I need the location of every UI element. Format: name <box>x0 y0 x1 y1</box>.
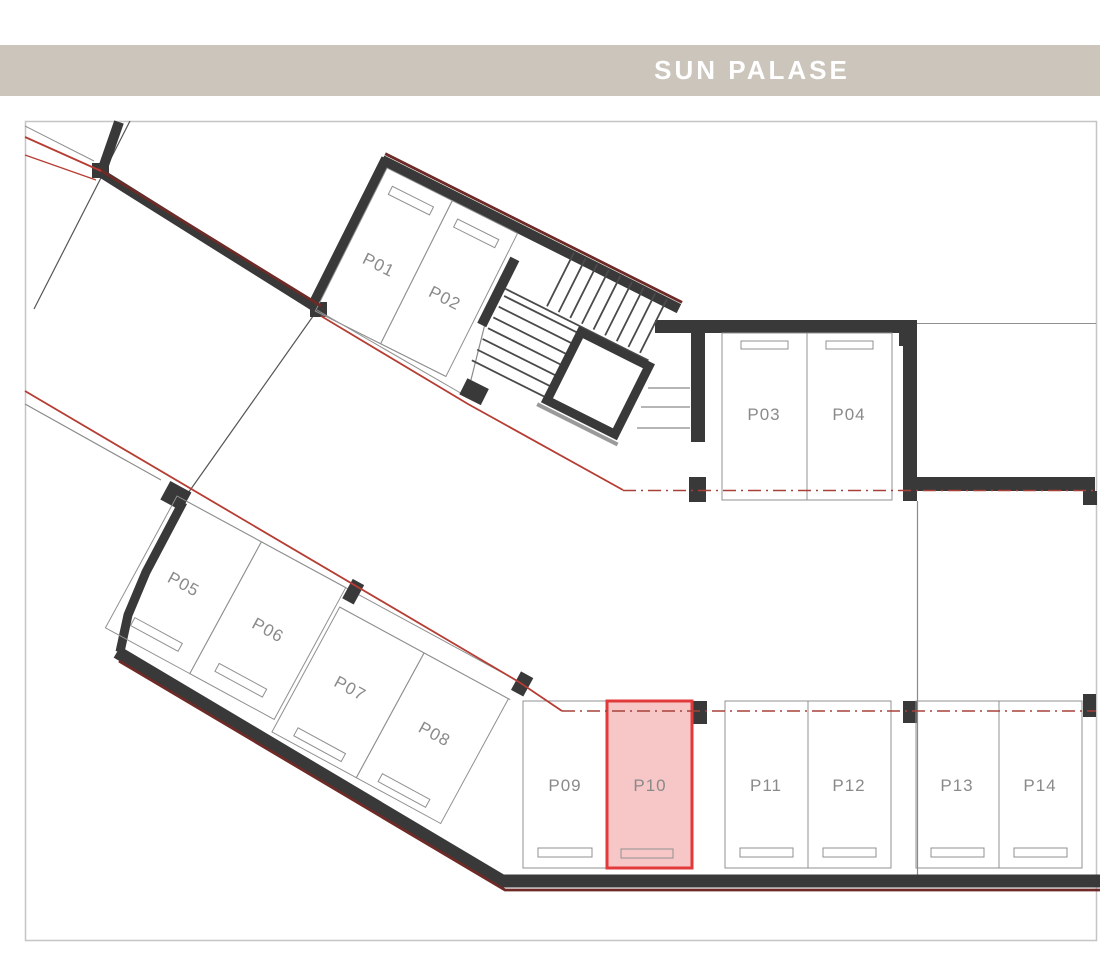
floor-plan: P01P02 P05P06P07P08 P03P04 P09P10P11P12P… <box>0 0 1100 960</box>
stall-label: P03 <box>747 405 780 424</box>
stall-label: P10 <box>633 776 666 795</box>
column <box>903 701 917 723</box>
parking-stall-P10[interactable]: P10 <box>607 701 692 868</box>
page: SUN PALASE <box>0 0 1100 960</box>
stall-label: P04 <box>832 405 865 424</box>
column <box>1083 694 1096 717</box>
stall-label: P11 <box>750 776 782 795</box>
stall-label: P12 <box>832 776 865 795</box>
column <box>689 477 706 502</box>
stall-label: P14 <box>1023 776 1056 795</box>
wall-stub <box>1083 491 1097 505</box>
stair-right-wall <box>691 322 705 442</box>
wall-right-lower <box>903 477 1095 491</box>
stall-label: P13 <box>940 776 973 795</box>
stall-label: P09 <box>548 776 581 795</box>
wall-right-p04 <box>903 333 917 501</box>
